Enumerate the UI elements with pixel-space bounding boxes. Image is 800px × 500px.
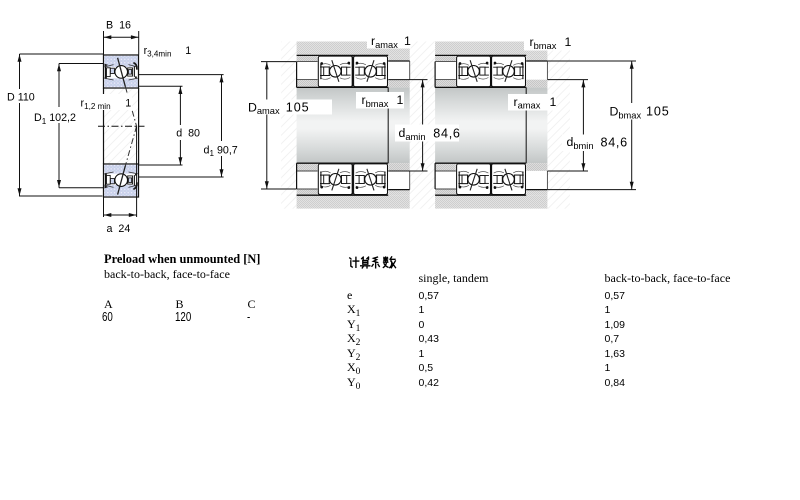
svg-text:1: 1 — [550, 95, 557, 109]
svg-text:1: 1 — [125, 97, 131, 109]
svg-text:84,6: 84,6 — [601, 135, 628, 149]
svg-text:1: 1 — [397, 93, 404, 107]
svg-text:105: 105 — [286, 101, 310, 115]
svg-text:D1​ 102,2: D1​ 102,2 — [34, 112, 76, 126]
svg-text:84,6: 84,6 — [433, 126, 460, 140]
svg-text:1: 1 — [565, 35, 572, 49]
svg-text:105: 105 — [646, 105, 670, 119]
svg-text:D 110: D 110 — [7, 91, 35, 103]
svg-text:B 16: B 16 — [106, 19, 131, 31]
svg-text:d 80: d 80 — [176, 127, 200, 139]
svg-text:a 24: a 24 — [107, 223, 131, 235]
svg-text:d1​ 90,7: d1​ 90,7 — [204, 144, 238, 158]
svg-text:1: 1 — [185, 45, 191, 57]
svg-text:1: 1 — [404, 34, 411, 48]
